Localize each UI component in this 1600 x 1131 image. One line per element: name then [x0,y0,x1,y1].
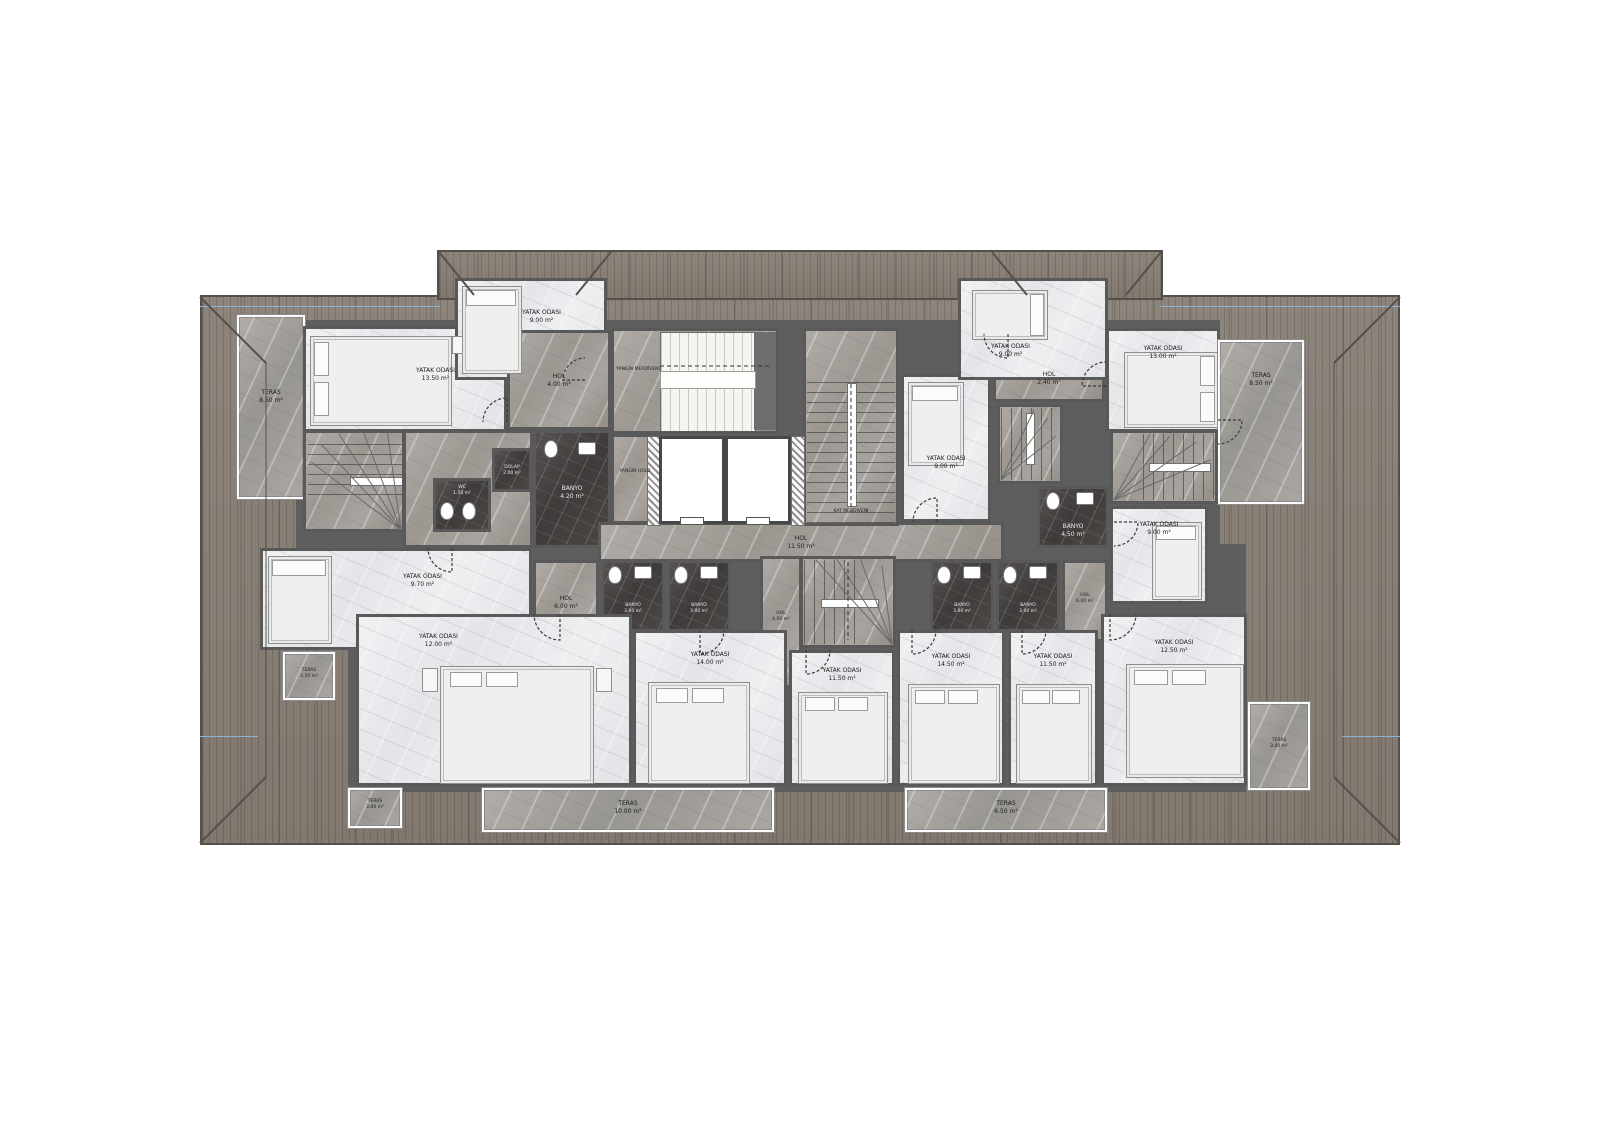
room-area: 3.50 m² [300,674,318,680]
toilet [608,566,622,584]
room-name: BANYO [954,603,970,609]
toilet [1046,492,1060,510]
room-area: 8.50 m² [259,397,283,405]
pillow [450,672,482,687]
sink [1029,566,1047,579]
room-closet-left: DOLAP2.00 m² [492,448,532,492]
nightstand [422,668,438,692]
pillow [1200,356,1215,386]
room-name: HOL [1080,593,1089,599]
section-line-left [200,306,440,307]
room-area: 4.20 m² [560,493,584,501]
room-name: DOLAP [504,465,519,471]
room-name: YATAK ODASI [932,653,971,661]
sink [963,566,981,579]
room-area: 11.50 m² [787,543,814,551]
pillow [1172,670,1206,685]
room-name: YATAK ODASI [991,343,1030,351]
room-area: 12.00 m² [425,641,452,649]
pillow [1052,690,1080,704]
toilet [1003,566,1017,584]
pillow [915,690,945,704]
room-terrace-top-left: TERAS8.50 m² [237,315,305,499]
pillow [314,342,329,376]
section-line-right [1160,306,1400,307]
toilet [440,502,454,520]
pillow [656,688,688,703]
room-fire-stair: YANGIN MERDİVENİ [611,328,779,434]
pillow [912,386,958,401]
room-name: WC [458,485,466,491]
stair-rail [1026,413,1035,465]
toilet [674,566,688,584]
pillow [1022,690,1050,704]
mattress [313,339,449,423]
room-area: 4.50 m² [1061,531,1085,539]
room-stair-right-small [997,404,1063,484]
stair-landing [660,371,756,389]
room-name: YATAK ODASI [419,633,458,641]
room-name: TERAS [618,800,637,808]
pillow [272,560,326,576]
pillow [1200,392,1215,422]
toilet [937,566,951,584]
elevator-shaft [659,436,725,524]
room-terrace-bottom-center: TERAS10.00 m² [482,788,774,832]
room-name: TERAS [996,800,1015,808]
pillow [948,690,978,704]
pillow [1134,670,1168,685]
hatch-wall [791,436,805,526]
pillow [1156,526,1196,540]
pillow [466,290,516,306]
sink [700,566,718,579]
room-name: YATAK ODASI [823,667,862,675]
room-name: YATAK ODASI [691,651,730,659]
room-stair-bottom-center [800,556,896,648]
pillow [1030,294,1044,336]
room-area: 6.00 m² [1076,599,1094,605]
room-stair-winder-left [303,430,405,532]
room-name: YATAK ODASI [403,573,442,581]
stair-rail [847,383,857,507]
room-name: TERAS [368,799,382,805]
room-name: HOL [560,595,573,603]
stair-rail [821,599,879,608]
core-shaft-block [754,332,779,430]
room-area: 6.00 m² [554,603,578,611]
toilet [544,440,558,458]
room-name: TERAS [1272,738,1286,744]
room-area: 1.50 m² [453,491,471,497]
pillow [838,697,868,711]
room-area: 8.50 m² [1249,380,1273,388]
double-bed [310,336,452,426]
room-area: 14.50 m² [937,661,964,669]
floor-plan-canvas: TERAS8.50 m² YATAK ODASI13.50 m² YATAK O… [0,0,1600,1131]
room-area: 9.00 m² [530,317,554,325]
room-area: 3.00 m² [366,805,384,811]
room-area: 2.00 m² [503,471,521,477]
room-area: 4.00 m² [547,381,571,389]
pillow [692,688,724,703]
room-area: 3.00 m² [1270,744,1288,750]
room-area: 3.00 m² [1019,609,1037,615]
room-area: 3.00 m² [953,609,971,615]
section-line-bottom-left [200,736,258,737]
room-terrace-bottom-right-small: TERAS3.00 m² [1248,702,1310,790]
nightstand [596,668,612,692]
elevator-door [680,517,704,525]
room-main-stair: KAT MERDİVENİ [803,328,899,526]
stair-rail [1149,463,1211,472]
elevator-shaft [725,436,791,524]
room-area: 10.00 m² [614,808,641,816]
sink [1076,492,1094,505]
room-name: YANGIN MERDİVENİ [616,367,660,373]
room-name: TERAS [302,668,316,674]
room-name: HOL [795,535,808,543]
room-name: BANYO [562,485,583,493]
room-name: YATAK ODASI [1034,653,1073,661]
pillow [486,672,518,687]
room-stair-winder-right [1110,430,1218,504]
room-area: 9.70 m² [411,581,435,589]
room-area: 11.50 m² [828,675,855,683]
pillow [805,697,835,711]
room-name: TERAS [261,389,280,397]
room-terrace-bottom-right: TERAS6.50 m² [905,788,1107,832]
room-terrace-bottom-left: TERAS3.00 m² [348,788,402,828]
room-name: BANYO [625,603,641,609]
elevator-door [746,517,770,525]
toilet [462,502,476,520]
room-name: HOL [553,373,566,381]
section-line-bottom-right [1342,736,1400,737]
room-name: BANYO [691,603,707,609]
room-name: YANGIN HOLÜ [620,469,651,475]
room-hall-upper-left: HOL4.00 m² [507,330,611,430]
room-area: 12.50 m² [1160,647,1187,655]
room-name: YATAK ODASI [1155,639,1194,647]
room-terrace-top-right: TERAS8.50 m² [1218,340,1304,504]
room-name: YATAK ODASI [522,309,561,317]
room-name: BANYO [1020,603,1036,609]
room-area: 14.00 m² [696,659,723,667]
sink [578,442,596,455]
room-name: TERAS [1251,372,1270,380]
room-area: 4.00 m² [772,617,790,623]
room-name: BANYO [1063,523,1084,531]
room-area: 3.00 m² [690,609,708,615]
room-area: 9.00 m² [999,351,1023,359]
pillow [314,382,329,416]
room-area: 11.50 m² [1039,661,1066,669]
room-name: HOL [776,611,785,617]
room-terrace-mid-left: TERAS3.50 m² [283,652,335,700]
sink [634,566,652,579]
room-area: 6.50 m² [994,808,1018,816]
